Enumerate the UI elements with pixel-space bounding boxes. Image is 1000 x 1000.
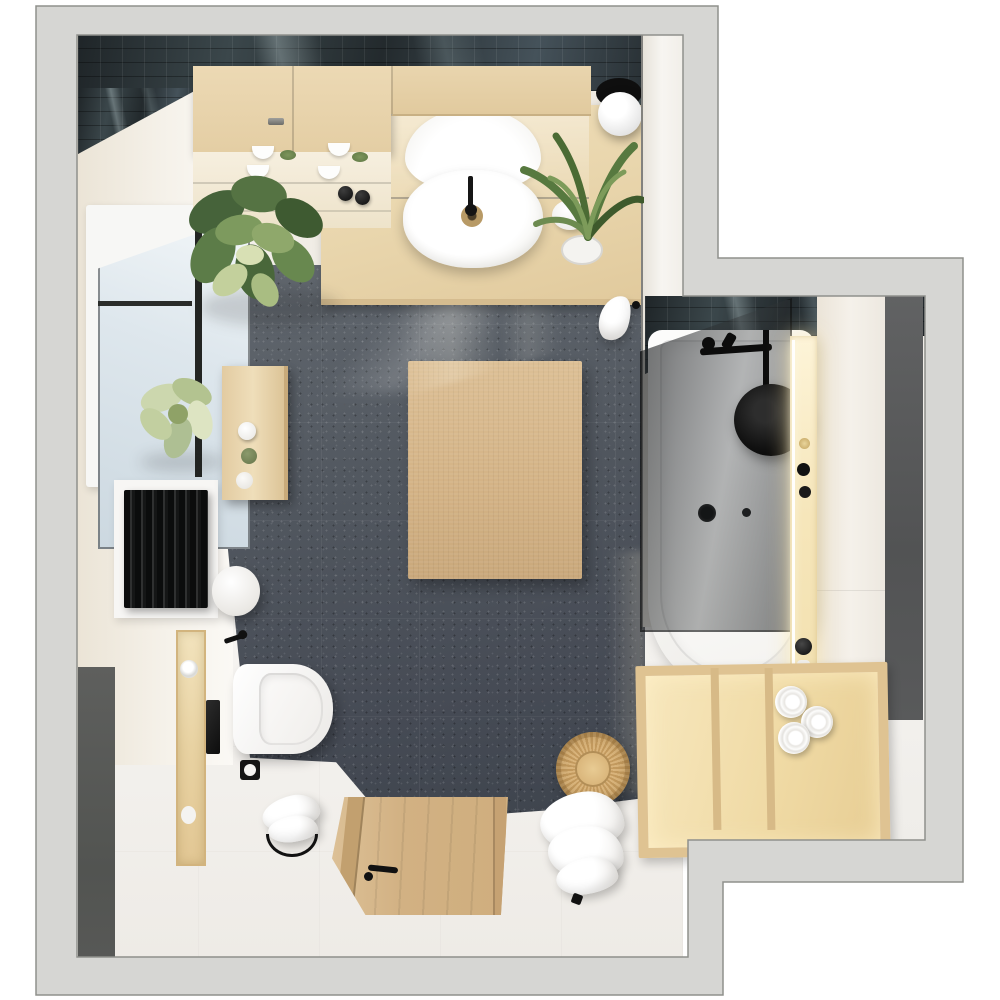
- bathroom-render-scene: [0, 0, 1000, 1000]
- perimeter-wall-cut: [0, 0, 1000, 1000]
